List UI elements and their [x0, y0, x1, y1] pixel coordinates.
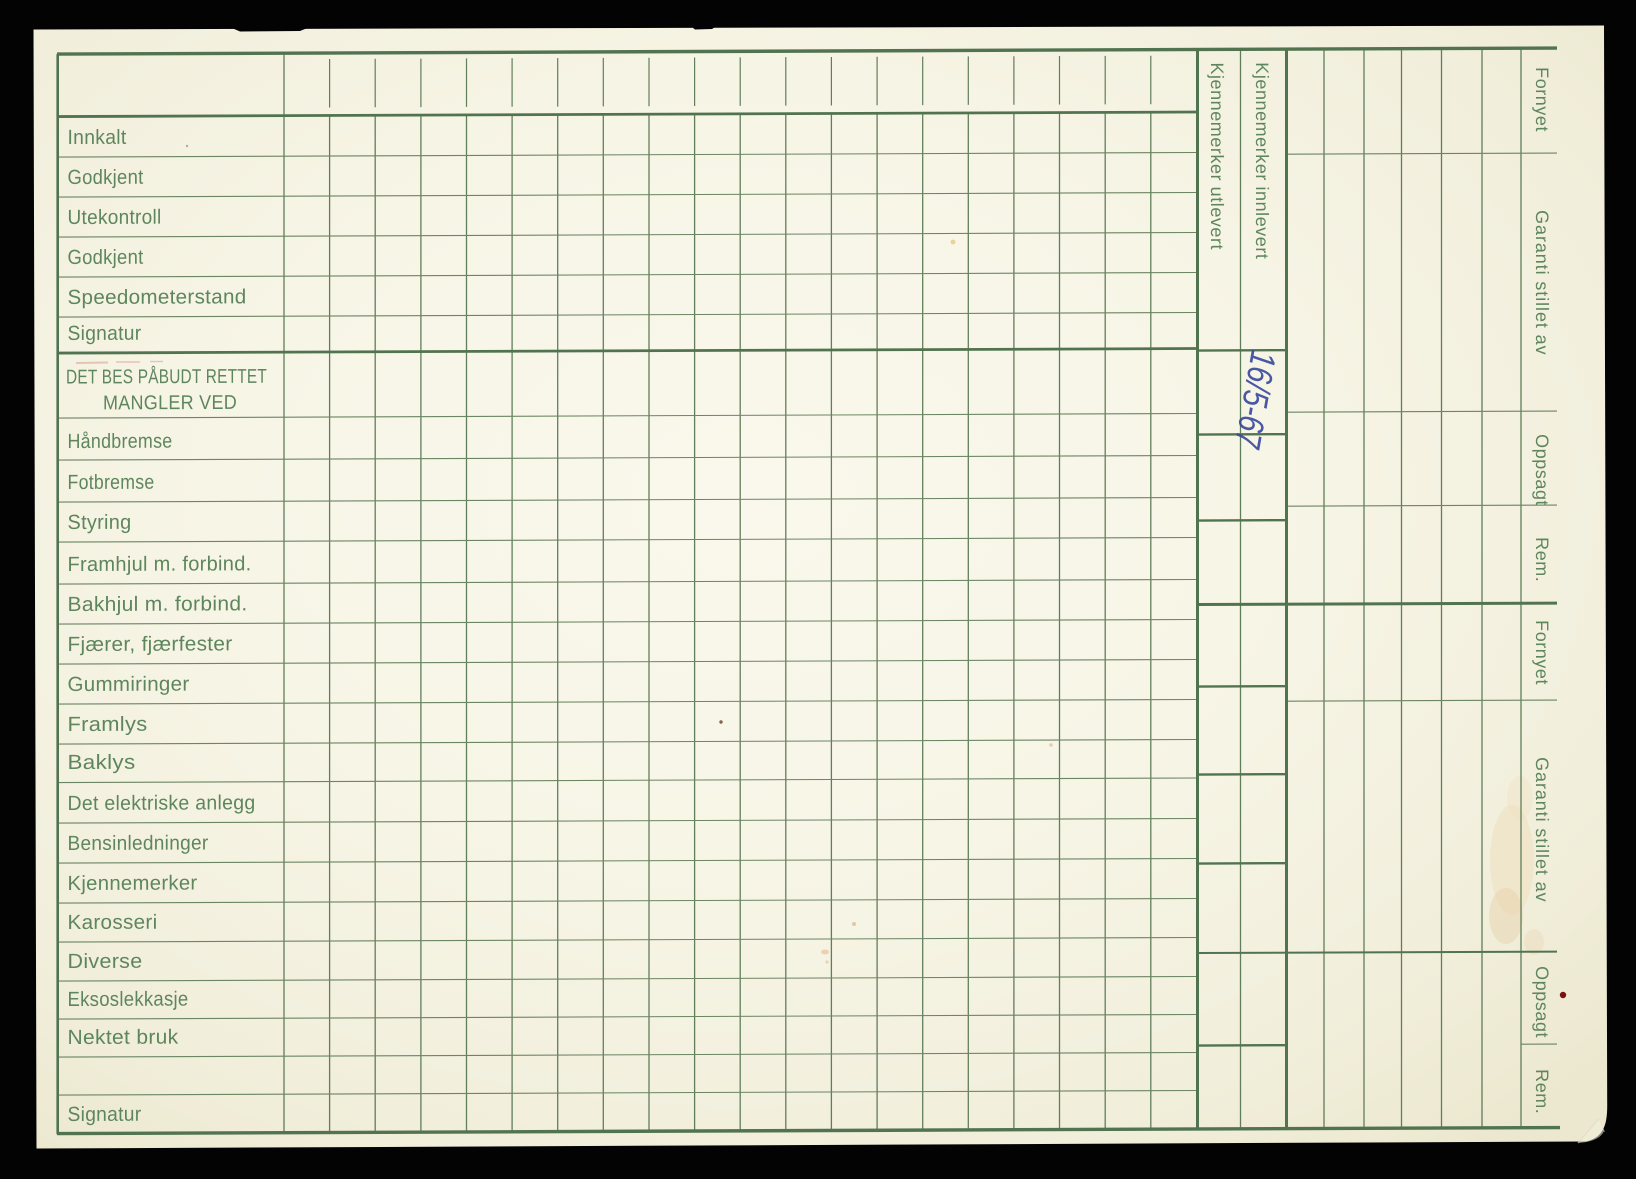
svg-text:Styring: Styring — [68, 511, 132, 534]
svg-text:Kjennemerker innlevert: Kjennemerker innlevert — [1252, 62, 1272, 259]
svg-text:Fotbremse: Fotbremse — [68, 471, 155, 494]
svg-text:Framlys: Framlys — [68, 713, 148, 736]
svg-text:Bakhjul m. forbind.: Bakhjul m. forbind. — [68, 592, 248, 616]
svg-text:Garanti stillet av: Garanti stillet av — [1532, 210, 1552, 355]
svg-text:Oppsagt: Oppsagt — [1532, 434, 1552, 506]
svg-text:Fornyet: Fornyet — [1532, 620, 1552, 685]
svg-text:Diverse: Diverse — [68, 950, 143, 973]
svg-text:Nektet bruk: Nektet bruk — [68, 1026, 179, 1049]
svg-text:Eksoslekkasje: Eksoslekkasje — [68, 988, 189, 1011]
svg-text:Håndbremse: Håndbremse — [68, 430, 173, 453]
svg-text:Godkjent: Godkjent — [68, 166, 144, 189]
svg-text:Fjærer, fjærfester: Fjærer, fjærfester — [68, 632, 233, 656]
svg-text:Garanti stillet av: Garanti stillet av — [1532, 757, 1552, 902]
svg-text:Baklys: Baklys — [68, 751, 136, 774]
svg-text:Karosseri: Karosseri — [68, 911, 158, 934]
svg-text:Kjennemerker: Kjennemerker — [68, 872, 198, 896]
svg-text:Gummiringer: Gummiringer — [68, 673, 190, 696]
svg-text:Fornyet: Fornyet — [1532, 67, 1552, 132]
svg-text:Innkalt: Innkalt — [68, 126, 127, 149]
svg-text:Det elektriske anlegg: Det elektriske anlegg — [68, 791, 256, 815]
svg-text:Godkjent: Godkjent — [68, 246, 144, 269]
svg-text:Oppsagt: Oppsagt — [1532, 966, 1552, 1038]
svg-text:Kjennemerker utlevert: Kjennemerker utlevert — [1207, 62, 1227, 250]
svg-text:DET BES PÅBUDT RETTET: DET BES PÅBUDT RETTET — [66, 365, 267, 389]
svg-text:Speedometerstand: Speedometerstand — [68, 285, 247, 309]
svg-text:Rem.: Rem. — [1532, 1069, 1552, 1114]
svg-text:Rem.: Rem. — [1532, 537, 1552, 582]
svg-text:Bensinledninger: Bensinledninger — [68, 831, 209, 855]
svg-text:Signatur: Signatur — [68, 322, 142, 345]
svg-text:Framhjul m. forbind.: Framhjul m. forbind. — [68, 552, 252, 576]
svg-text:Signatur: Signatur — [68, 1103, 142, 1126]
svg-text:MANGLER VED: MANGLER VED — [103, 392, 237, 415]
svg-text:Utekontroll: Utekontroll — [68, 206, 162, 229]
